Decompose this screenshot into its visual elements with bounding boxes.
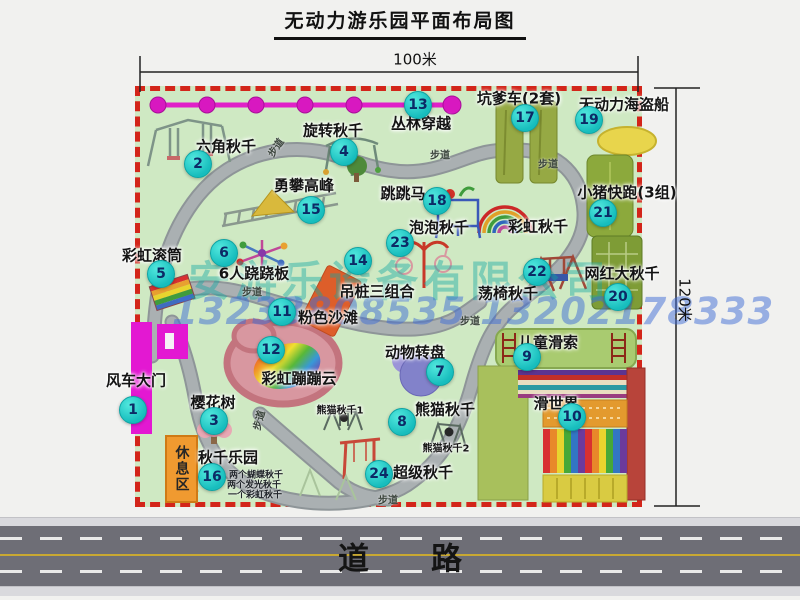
poi-badge-7: 7 bbox=[426, 358, 454, 386]
poi-badge-3: 3 bbox=[200, 407, 228, 435]
poi-badge-14: 14 bbox=[344, 247, 372, 275]
poi-label-jumping-horse: 跳跳马 bbox=[380, 183, 425, 204]
poi-label-rotating-swing: 旋转秋千 bbox=[303, 120, 363, 141]
poi-label-piggy-run: 小猪快跑(3组) bbox=[577, 182, 676, 203]
page-title: 无动力游乐园平面布局图 bbox=[0, 6, 800, 40]
poi-label-super-swing: 超级秋千 bbox=[393, 462, 453, 483]
slide-world-zone bbox=[478, 366, 645, 502]
poi-label-pink-beach: 粉色沙滩 bbox=[298, 307, 358, 328]
poi-badge-1: 1 bbox=[119, 396, 147, 424]
poi-badge-5: 5 bbox=[147, 260, 175, 288]
tree-trunk bbox=[354, 173, 359, 182]
poi-badge-8: 8 bbox=[388, 408, 416, 436]
poi-badge-23: 23 bbox=[386, 229, 414, 257]
poi-label-hanging-post-combo: 吊桩三组合 bbox=[339, 281, 414, 302]
poi-badge-17: 17 bbox=[511, 104, 539, 132]
hexagon-swing-seat bbox=[167, 156, 180, 160]
footpath-label: 步道 bbox=[538, 156, 558, 171]
dimension-width-label: 100米 bbox=[393, 49, 437, 70]
poi-label-rocking-chair-swing: 荡椅秋千 bbox=[478, 283, 538, 304]
poi-badge-18: 18 bbox=[423, 187, 451, 215]
poi-badge-11: 11 bbox=[268, 298, 296, 326]
pirate-ship-zone bbox=[598, 127, 656, 155]
poi-badge-4: 4 bbox=[330, 138, 358, 166]
poi-badge-6: 6 bbox=[210, 239, 238, 267]
poi-badge-22: 22 bbox=[523, 258, 551, 286]
label-panda-swing-2: 熊猫秋千2 bbox=[423, 440, 470, 455]
poi-badge-13: 13 bbox=[404, 91, 432, 119]
poi-badge-21: 21 bbox=[589, 199, 617, 227]
footpath-label: 步道 bbox=[378, 492, 398, 507]
label-rainbow-swing: 彩虹秋千 bbox=[508, 216, 568, 237]
poi-label-windmill-gate: 风车大门 bbox=[106, 370, 166, 391]
poi-badge-24: 24 bbox=[365, 460, 393, 488]
footpath-label: 步道 bbox=[242, 284, 262, 299]
poi-label-panda-swing: 熊猫秋千 bbox=[415, 399, 475, 420]
poi-label-bubble-swing: 泡泡秋千 bbox=[409, 217, 469, 238]
footpath-label: 步道 bbox=[430, 147, 450, 162]
park-layout-plan: 无动力游乐园平面布局图 100米 120米 bbox=[0, 0, 800, 600]
poi-badge-20: 20 bbox=[604, 283, 632, 311]
poi-badge-10: 10 bbox=[558, 403, 586, 431]
poi-label-rainbow-bounce-cloud: 彩虹蹦蹦云 bbox=[261, 368, 336, 389]
poi-badge-15: 15 bbox=[297, 196, 325, 224]
rotating-swing-seat bbox=[375, 167, 381, 173]
poi-badge-16: 16 bbox=[198, 463, 226, 491]
pink-beach-graphic bbox=[227, 321, 339, 404]
poi-badge-9: 9 bbox=[513, 343, 541, 371]
poi-badge-19: 19 bbox=[575, 106, 603, 134]
poi-badge-2: 2 bbox=[184, 150, 212, 178]
rest-area-label: 休息区 bbox=[172, 445, 192, 493]
label-panda-swing-1: 熊猫秋千1 bbox=[317, 402, 364, 417]
page-title-text: 无动力游乐园平面布局图 bbox=[274, 6, 525, 40]
rest-area-box: 休息区 bbox=[165, 435, 198, 503]
poi-label-giant-swing: 网红大秋千 bbox=[584, 263, 659, 284]
dimension-height-label: 120米 bbox=[675, 278, 696, 322]
poi-badge-12: 12 bbox=[257, 336, 285, 364]
poi-label-climbing-peak: 勇攀高峰 bbox=[274, 175, 334, 196]
swing-park-note-3: 一个彩虹秋千 bbox=[228, 488, 282, 501]
footpath-label: 步道 bbox=[460, 313, 480, 328]
dimension-width-line bbox=[140, 56, 638, 92]
